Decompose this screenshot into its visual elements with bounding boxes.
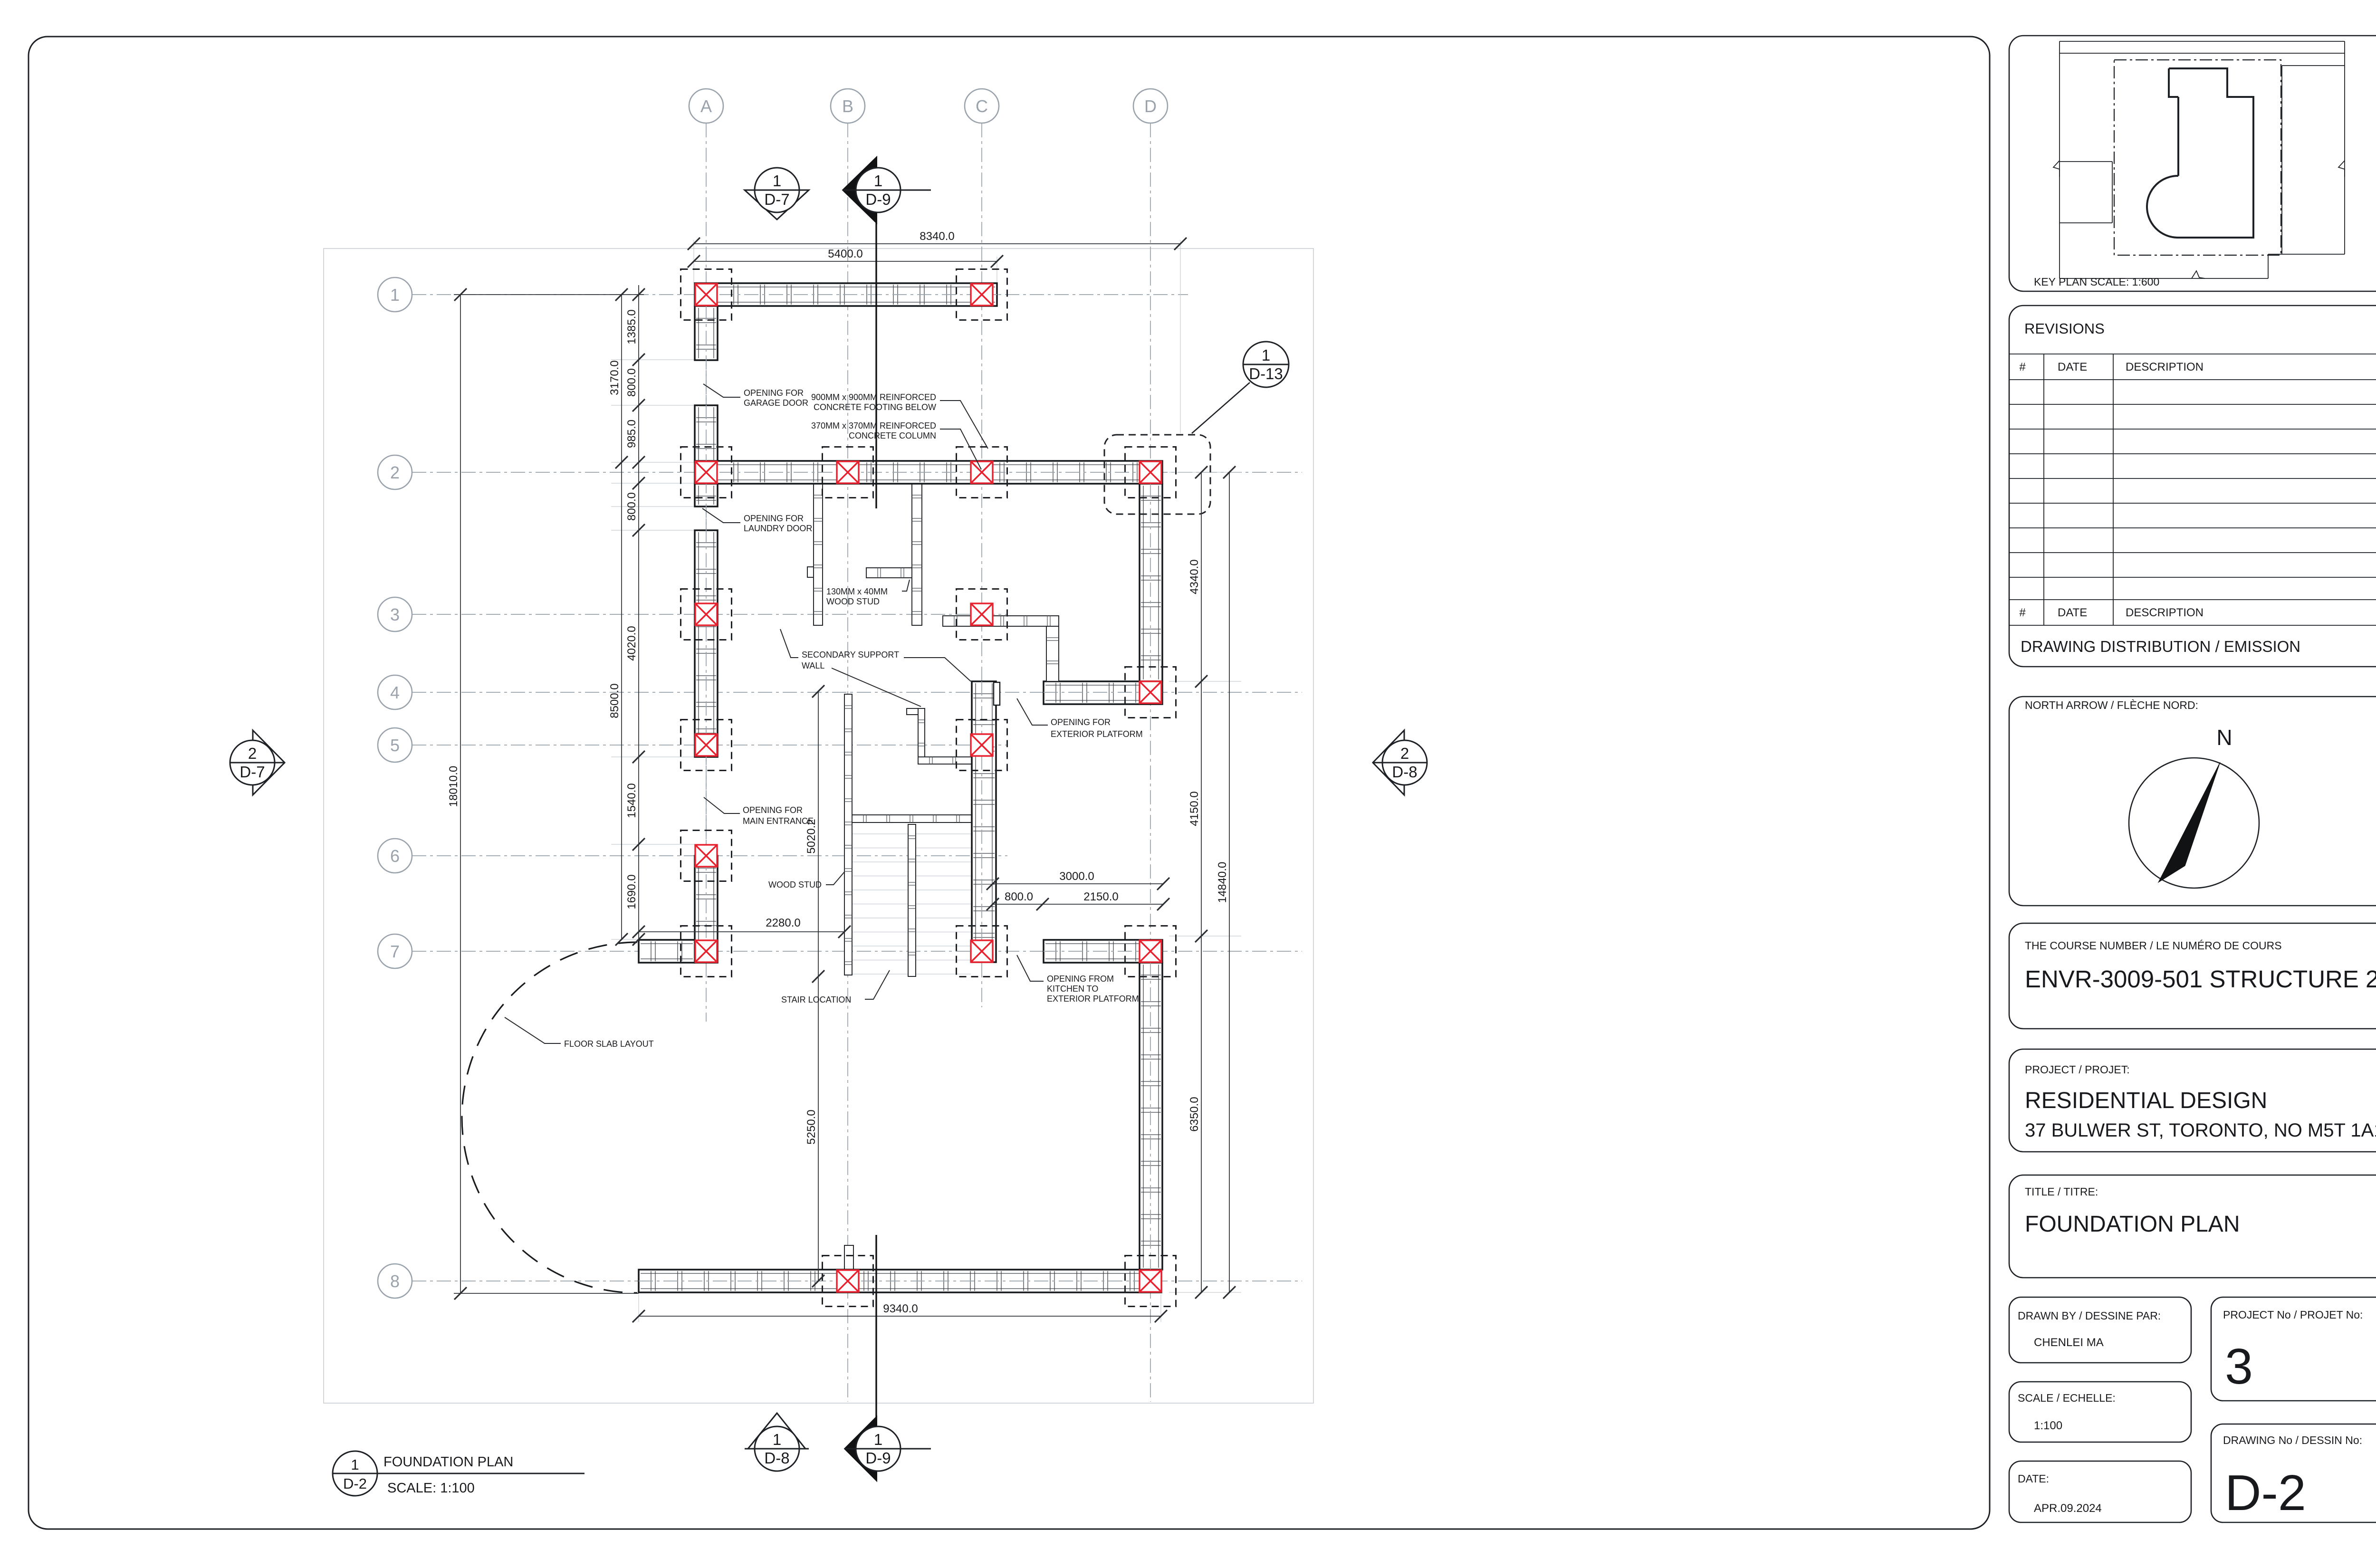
svg-text:4020.0: 4020.0 bbox=[625, 626, 638, 660]
svg-text:SECONDARY SUPPORT: SECONDARY SUPPORT bbox=[802, 650, 899, 660]
svg-text:1: 1 bbox=[773, 172, 781, 190]
svg-text:FOUNDATION PLAN: FOUNDATION PLAN bbox=[2025, 1212, 2240, 1237]
svg-text:1: 1 bbox=[390, 285, 400, 305]
svg-text:900MM x 900MM REINFORCED: 900MM x 900MM REINFORCED bbox=[811, 392, 936, 402]
svg-text:4150.0: 4150.0 bbox=[1188, 791, 1201, 826]
svg-text:KEY PLAN SCALE: 1:600: KEY PLAN SCALE: 1:600 bbox=[2034, 276, 2159, 288]
svg-text:800.0: 800.0 bbox=[625, 492, 638, 521]
svg-text:1: 1 bbox=[1262, 346, 1270, 364]
svg-text:D: D bbox=[1144, 96, 1157, 116]
svg-text:D-2: D-2 bbox=[343, 1475, 367, 1492]
svg-text:3: 3 bbox=[2225, 1339, 2253, 1395]
svg-text:#: # bbox=[2019, 361, 2026, 373]
svg-text:DRAWING DISTRIBUTION / EMISSIO: DRAWING DISTRIBUTION / EMISSION bbox=[2021, 638, 2300, 655]
svg-text:6350.0: 6350.0 bbox=[1188, 1097, 1201, 1131]
svg-text:370MM x 370MM REINFORCED: 370MM x 370MM REINFORCED bbox=[811, 421, 936, 430]
svg-text:WOOD STUD: WOOD STUD bbox=[826, 597, 880, 606]
svg-text:2: 2 bbox=[1400, 745, 1409, 762]
svg-text:APR.09.2024: APR.09.2024 bbox=[2034, 1502, 2102, 1515]
svg-text:1: 1 bbox=[351, 1456, 359, 1473]
svg-text:1: 1 bbox=[773, 1431, 781, 1448]
svg-text:B: B bbox=[842, 96, 853, 116]
svg-text:18010.0: 18010.0 bbox=[447, 766, 460, 807]
svg-text:KITCHEN TO: KITCHEN TO bbox=[1047, 984, 1098, 994]
svg-text:CHENLEI MA: CHENLEI MA bbox=[2034, 1336, 2104, 1349]
svg-text:5400.0: 5400.0 bbox=[828, 248, 862, 260]
svg-text:WALL: WALL bbox=[802, 661, 824, 670]
svg-text:37 BULWER ST, TORONTO, NO M5T: 37 BULWER ST, TORONTO, NO M5T 1A1 bbox=[2025, 1120, 2376, 1141]
svg-text:LAUNDRY DOOR: LAUNDRY DOOR bbox=[744, 524, 812, 533]
svg-text:GARAGE DOOR: GARAGE DOOR bbox=[744, 398, 808, 408]
svg-text:N: N bbox=[2216, 725, 2232, 750]
svg-text:D-9: D-9 bbox=[865, 1449, 891, 1467]
svg-text:3170.0: 3170.0 bbox=[608, 360, 621, 395]
svg-text:DRAWING No / DESSIN No:: DRAWING No / DESSIN No: bbox=[2223, 1434, 2362, 1446]
svg-text:2280.0: 2280.0 bbox=[766, 917, 800, 929]
svg-text:DATE: DATE bbox=[2058, 361, 2087, 373]
svg-text:6: 6 bbox=[390, 846, 400, 866]
svg-text:D-2: D-2 bbox=[2225, 1465, 2306, 1521]
svg-text:1: 1 bbox=[874, 1431, 882, 1448]
svg-text:A: A bbox=[700, 96, 712, 116]
svg-text:WOOD STUD: WOOD STUD bbox=[768, 880, 822, 889]
svg-text:DESCRIPTION: DESCRIPTION bbox=[2126, 361, 2204, 373]
svg-text:D-7: D-7 bbox=[240, 763, 265, 781]
svg-text:THE COURSE NUMBER / LE NUMÉRO: THE COURSE NUMBER / LE NUMÉRO DE COURS bbox=[2025, 939, 2282, 952]
svg-text:9340.0: 9340.0 bbox=[883, 1302, 918, 1315]
svg-text:D-8: D-8 bbox=[1392, 763, 1417, 781]
svg-text:2: 2 bbox=[248, 745, 257, 762]
svg-text:FLOOR SLAB LAYOUT: FLOOR SLAB LAYOUT bbox=[564, 1039, 654, 1049]
svg-text:EXTERIOR PLATFORM: EXTERIOR PLATFORM bbox=[1051, 729, 1143, 739]
svg-text:NORTH ARROW / FLÈCHE NORD:: NORTH ARROW / FLÈCHE NORD: bbox=[2025, 699, 2198, 711]
svg-text:D-13: D-13 bbox=[1249, 365, 1283, 382]
svg-text:ENVR-3009-501 STRUCTURE 2: ENVR-3009-501 STRUCTURE 2 bbox=[2025, 966, 2376, 993]
svg-text:8500.0: 8500.0 bbox=[608, 683, 621, 718]
svg-text:8340.0: 8340.0 bbox=[920, 230, 954, 243]
svg-text:EXTERIOR PLATFORM: EXTERIOR PLATFORM bbox=[1047, 994, 1139, 1004]
svg-text:D-9: D-9 bbox=[865, 191, 891, 208]
svg-text:1690.0: 1690.0 bbox=[625, 874, 638, 909]
svg-text:130MM x 40MM: 130MM x 40MM bbox=[826, 587, 888, 596]
svg-text:7: 7 bbox=[390, 942, 400, 961]
svg-text:2: 2 bbox=[390, 463, 400, 482]
svg-text:985.0: 985.0 bbox=[625, 420, 638, 448]
svg-text:SCALE / ECHELLE:: SCALE / ECHELLE: bbox=[2018, 1392, 2116, 1404]
svg-text:1:100: 1:100 bbox=[2034, 1419, 2062, 1432]
svg-text:CONCRETE COLUMN: CONCRETE COLUMN bbox=[849, 431, 936, 440]
svg-text:4: 4 bbox=[390, 683, 400, 702]
svg-text:OPENING FOR: OPENING FOR bbox=[1051, 717, 1111, 727]
svg-text:3: 3 bbox=[390, 605, 400, 624]
svg-text:OPENING FOR: OPENING FOR bbox=[743, 805, 803, 815]
svg-text:PROJECT / PROJET:: PROJECT / PROJET: bbox=[2025, 1063, 2130, 1076]
svg-text:OPENING FROM: OPENING FROM bbox=[1047, 974, 1114, 984]
svg-text:MAIN ENTRANCE: MAIN ENTRANCE bbox=[743, 816, 814, 826]
svg-text:RESIDENTIAL DESIGN: RESIDENTIAL DESIGN bbox=[2025, 1088, 2267, 1113]
svg-text:1540.0: 1540.0 bbox=[625, 783, 638, 818]
svg-text:DATE: DATE bbox=[2058, 606, 2087, 619]
svg-text:8: 8 bbox=[390, 1272, 400, 1291]
svg-text:C: C bbox=[976, 96, 988, 116]
svg-text:1385.0: 1385.0 bbox=[625, 309, 638, 344]
svg-text:5: 5 bbox=[390, 736, 400, 755]
svg-text:800.0: 800.0 bbox=[1005, 890, 1033, 903]
svg-text:DRAWN BY / DESSINE PAR:: DRAWN BY / DESSINE PAR: bbox=[2018, 1310, 2161, 1322]
svg-text:DATE:: DATE: bbox=[2018, 1472, 2049, 1485]
svg-text:1: 1 bbox=[874, 172, 882, 190]
svg-text:OPENING FOR: OPENING FOR bbox=[744, 514, 804, 523]
svg-text:PROJECT No / PROJET No:: PROJECT No / PROJET No: bbox=[2223, 1309, 2363, 1321]
svg-text:2150.0: 2150.0 bbox=[1083, 890, 1118, 903]
svg-text:3000.0: 3000.0 bbox=[1059, 870, 1094, 883]
svg-text:DESCRIPTION: DESCRIPTION bbox=[2126, 606, 2204, 619]
svg-text:4340.0: 4340.0 bbox=[1188, 559, 1201, 594]
svg-text:D-8: D-8 bbox=[764, 1449, 789, 1467]
svg-text:CONCRETE FOOTING BELOW: CONCRETE FOOTING BELOW bbox=[814, 402, 936, 412]
svg-text:14840.0: 14840.0 bbox=[1216, 862, 1229, 903]
svg-text:SCALE: 1:100: SCALE: 1:100 bbox=[387, 1481, 475, 1496]
svg-text:OPENING FOR: OPENING FOR bbox=[744, 388, 804, 398]
svg-text:FOUNDATION PLAN: FOUNDATION PLAN bbox=[383, 1454, 513, 1470]
svg-text:STAIR LOCATION: STAIR LOCATION bbox=[781, 995, 851, 1004]
svg-text:#: # bbox=[2019, 606, 2026, 619]
svg-text:5250.0: 5250.0 bbox=[805, 1109, 818, 1144]
svg-text:800.0: 800.0 bbox=[625, 368, 638, 397]
svg-text:D-7: D-7 bbox=[764, 191, 789, 208]
svg-text:TITLE / TITRE:: TITLE / TITRE: bbox=[2025, 1186, 2098, 1198]
svg-text:REVISIONS: REVISIONS bbox=[2024, 320, 2105, 337]
